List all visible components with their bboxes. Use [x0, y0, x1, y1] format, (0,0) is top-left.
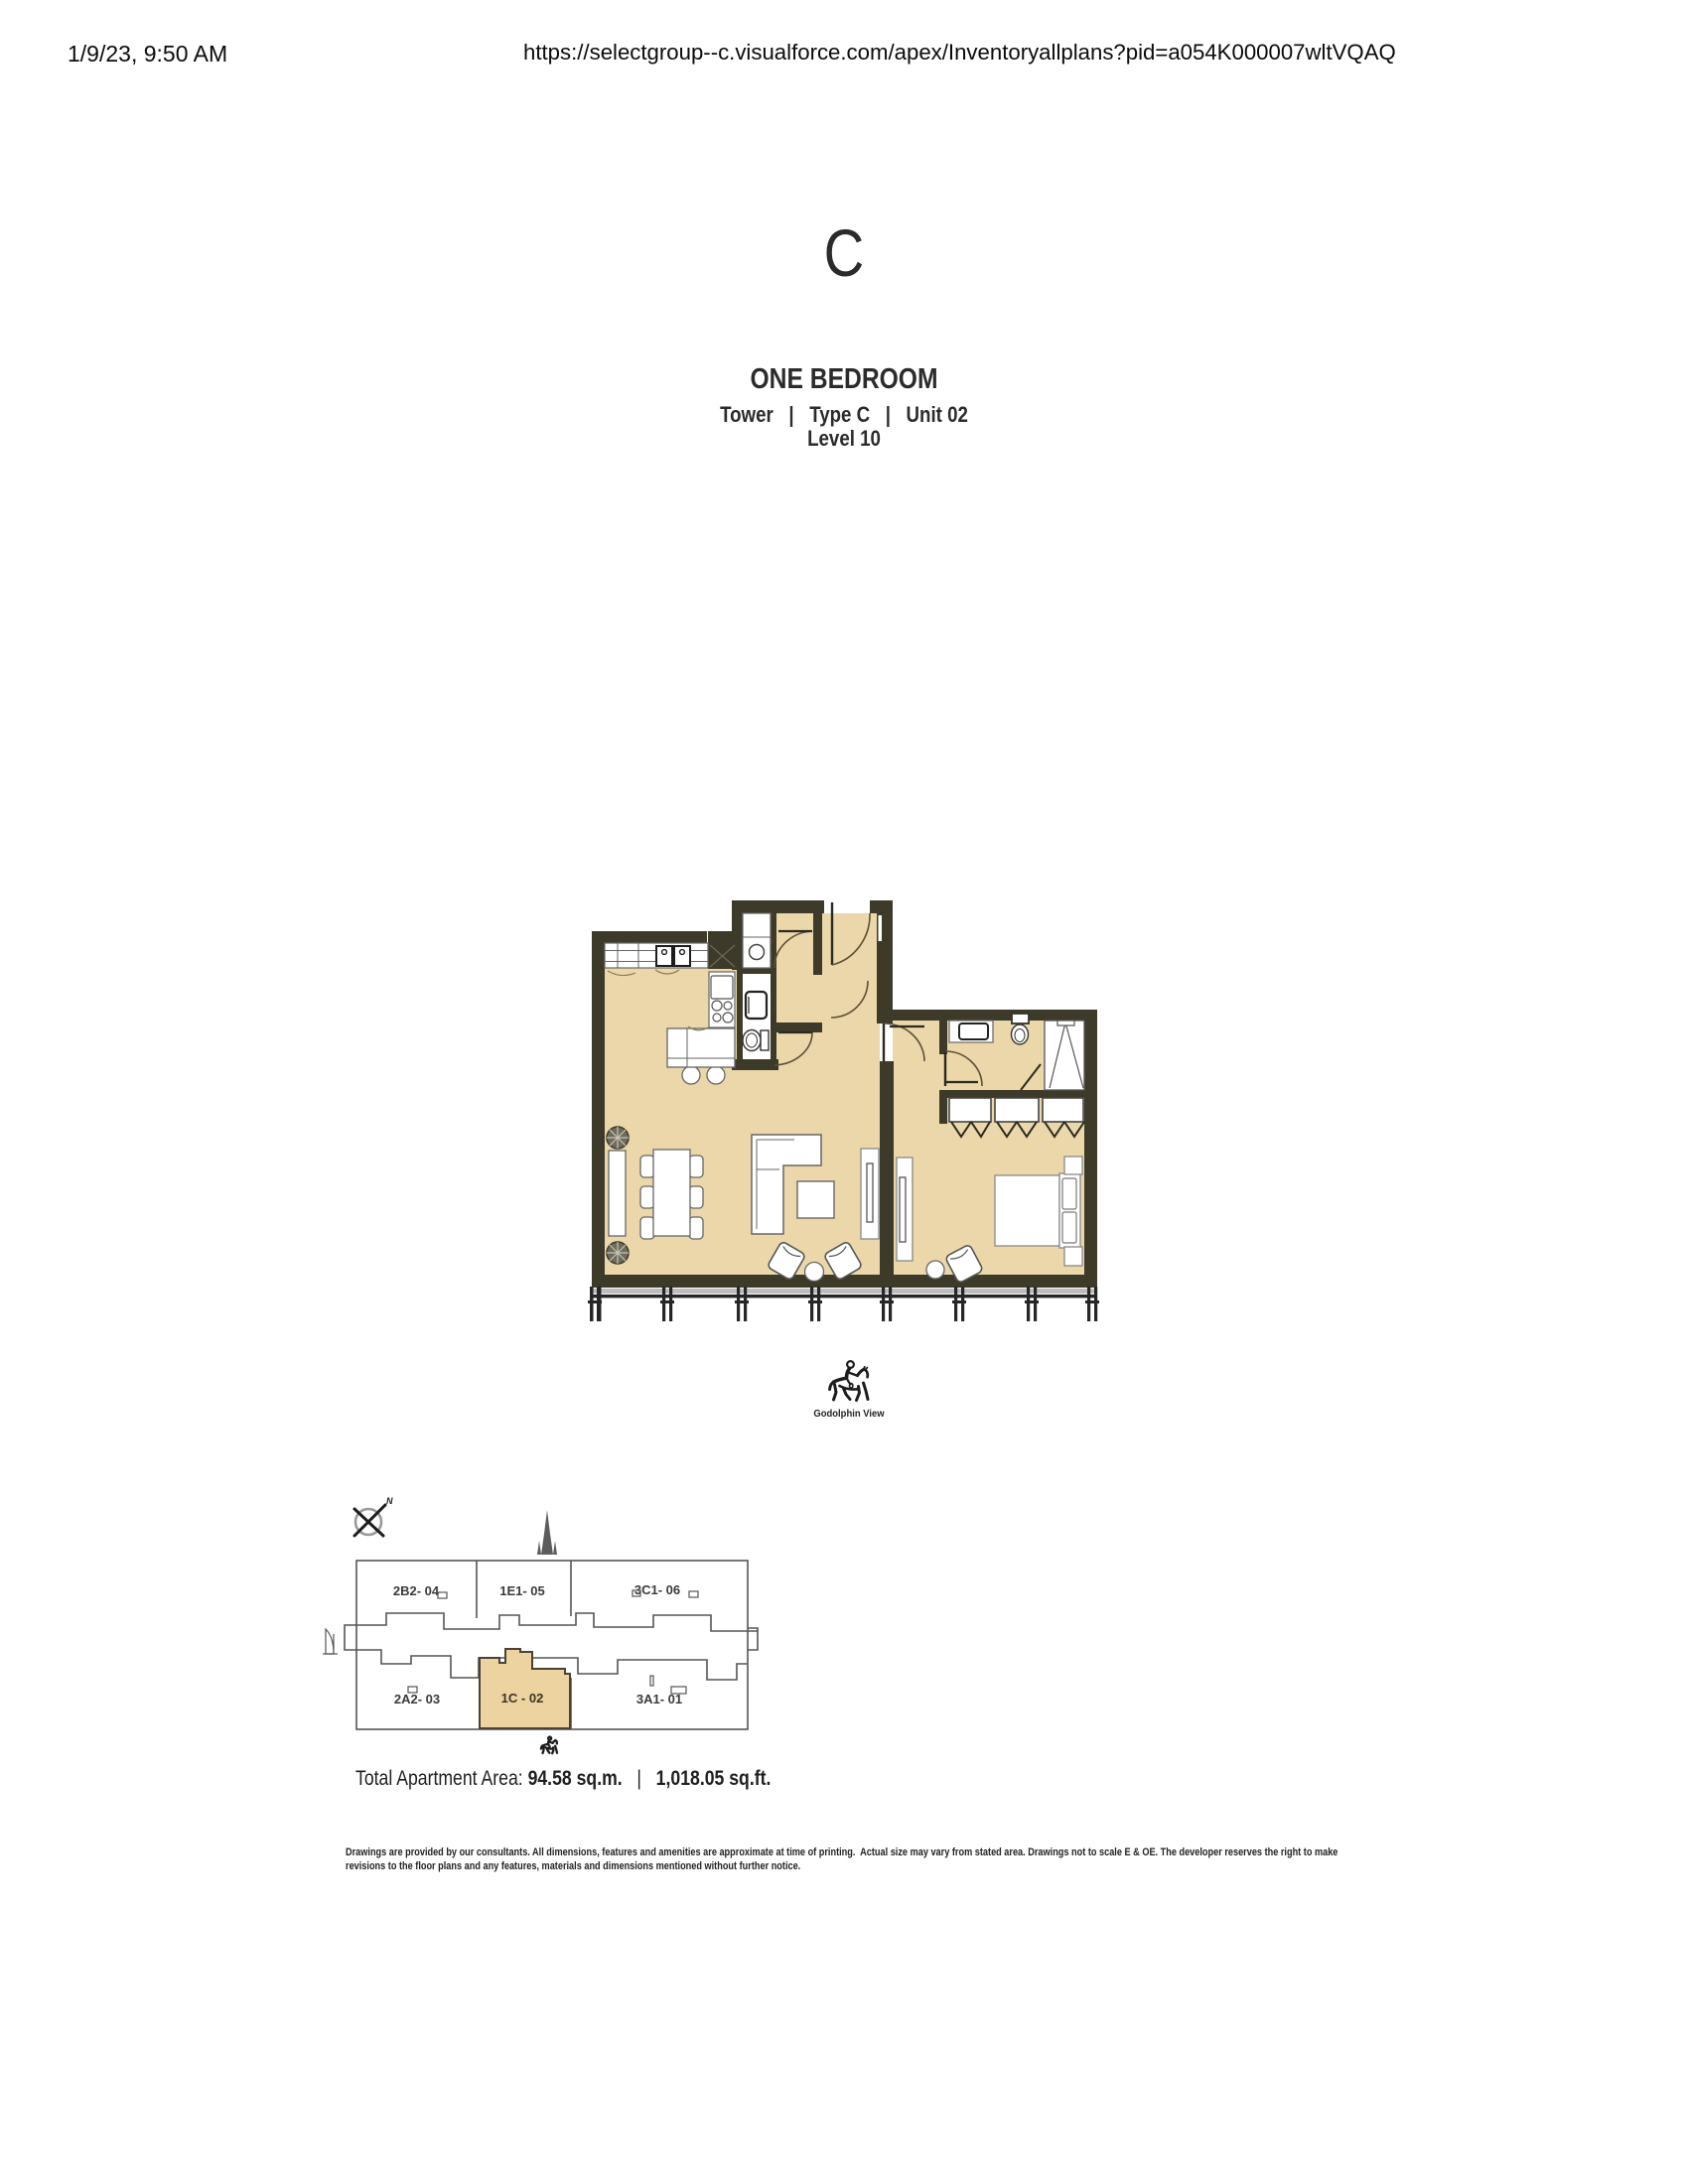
- svg-text:N: N: [386, 1496, 393, 1506]
- svg-text:2A2- 03: 2A2- 03: [394, 1692, 440, 1706]
- svg-text:3C1- 06: 3C1- 06: [634, 1582, 680, 1597]
- svg-text:1C - 02: 1C - 02: [501, 1691, 544, 1706]
- svg-text:1E1- 05: 1E1- 05: [499, 1583, 545, 1598]
- svg-text:2B2- 04: 2B2- 04: [393, 1583, 440, 1598]
